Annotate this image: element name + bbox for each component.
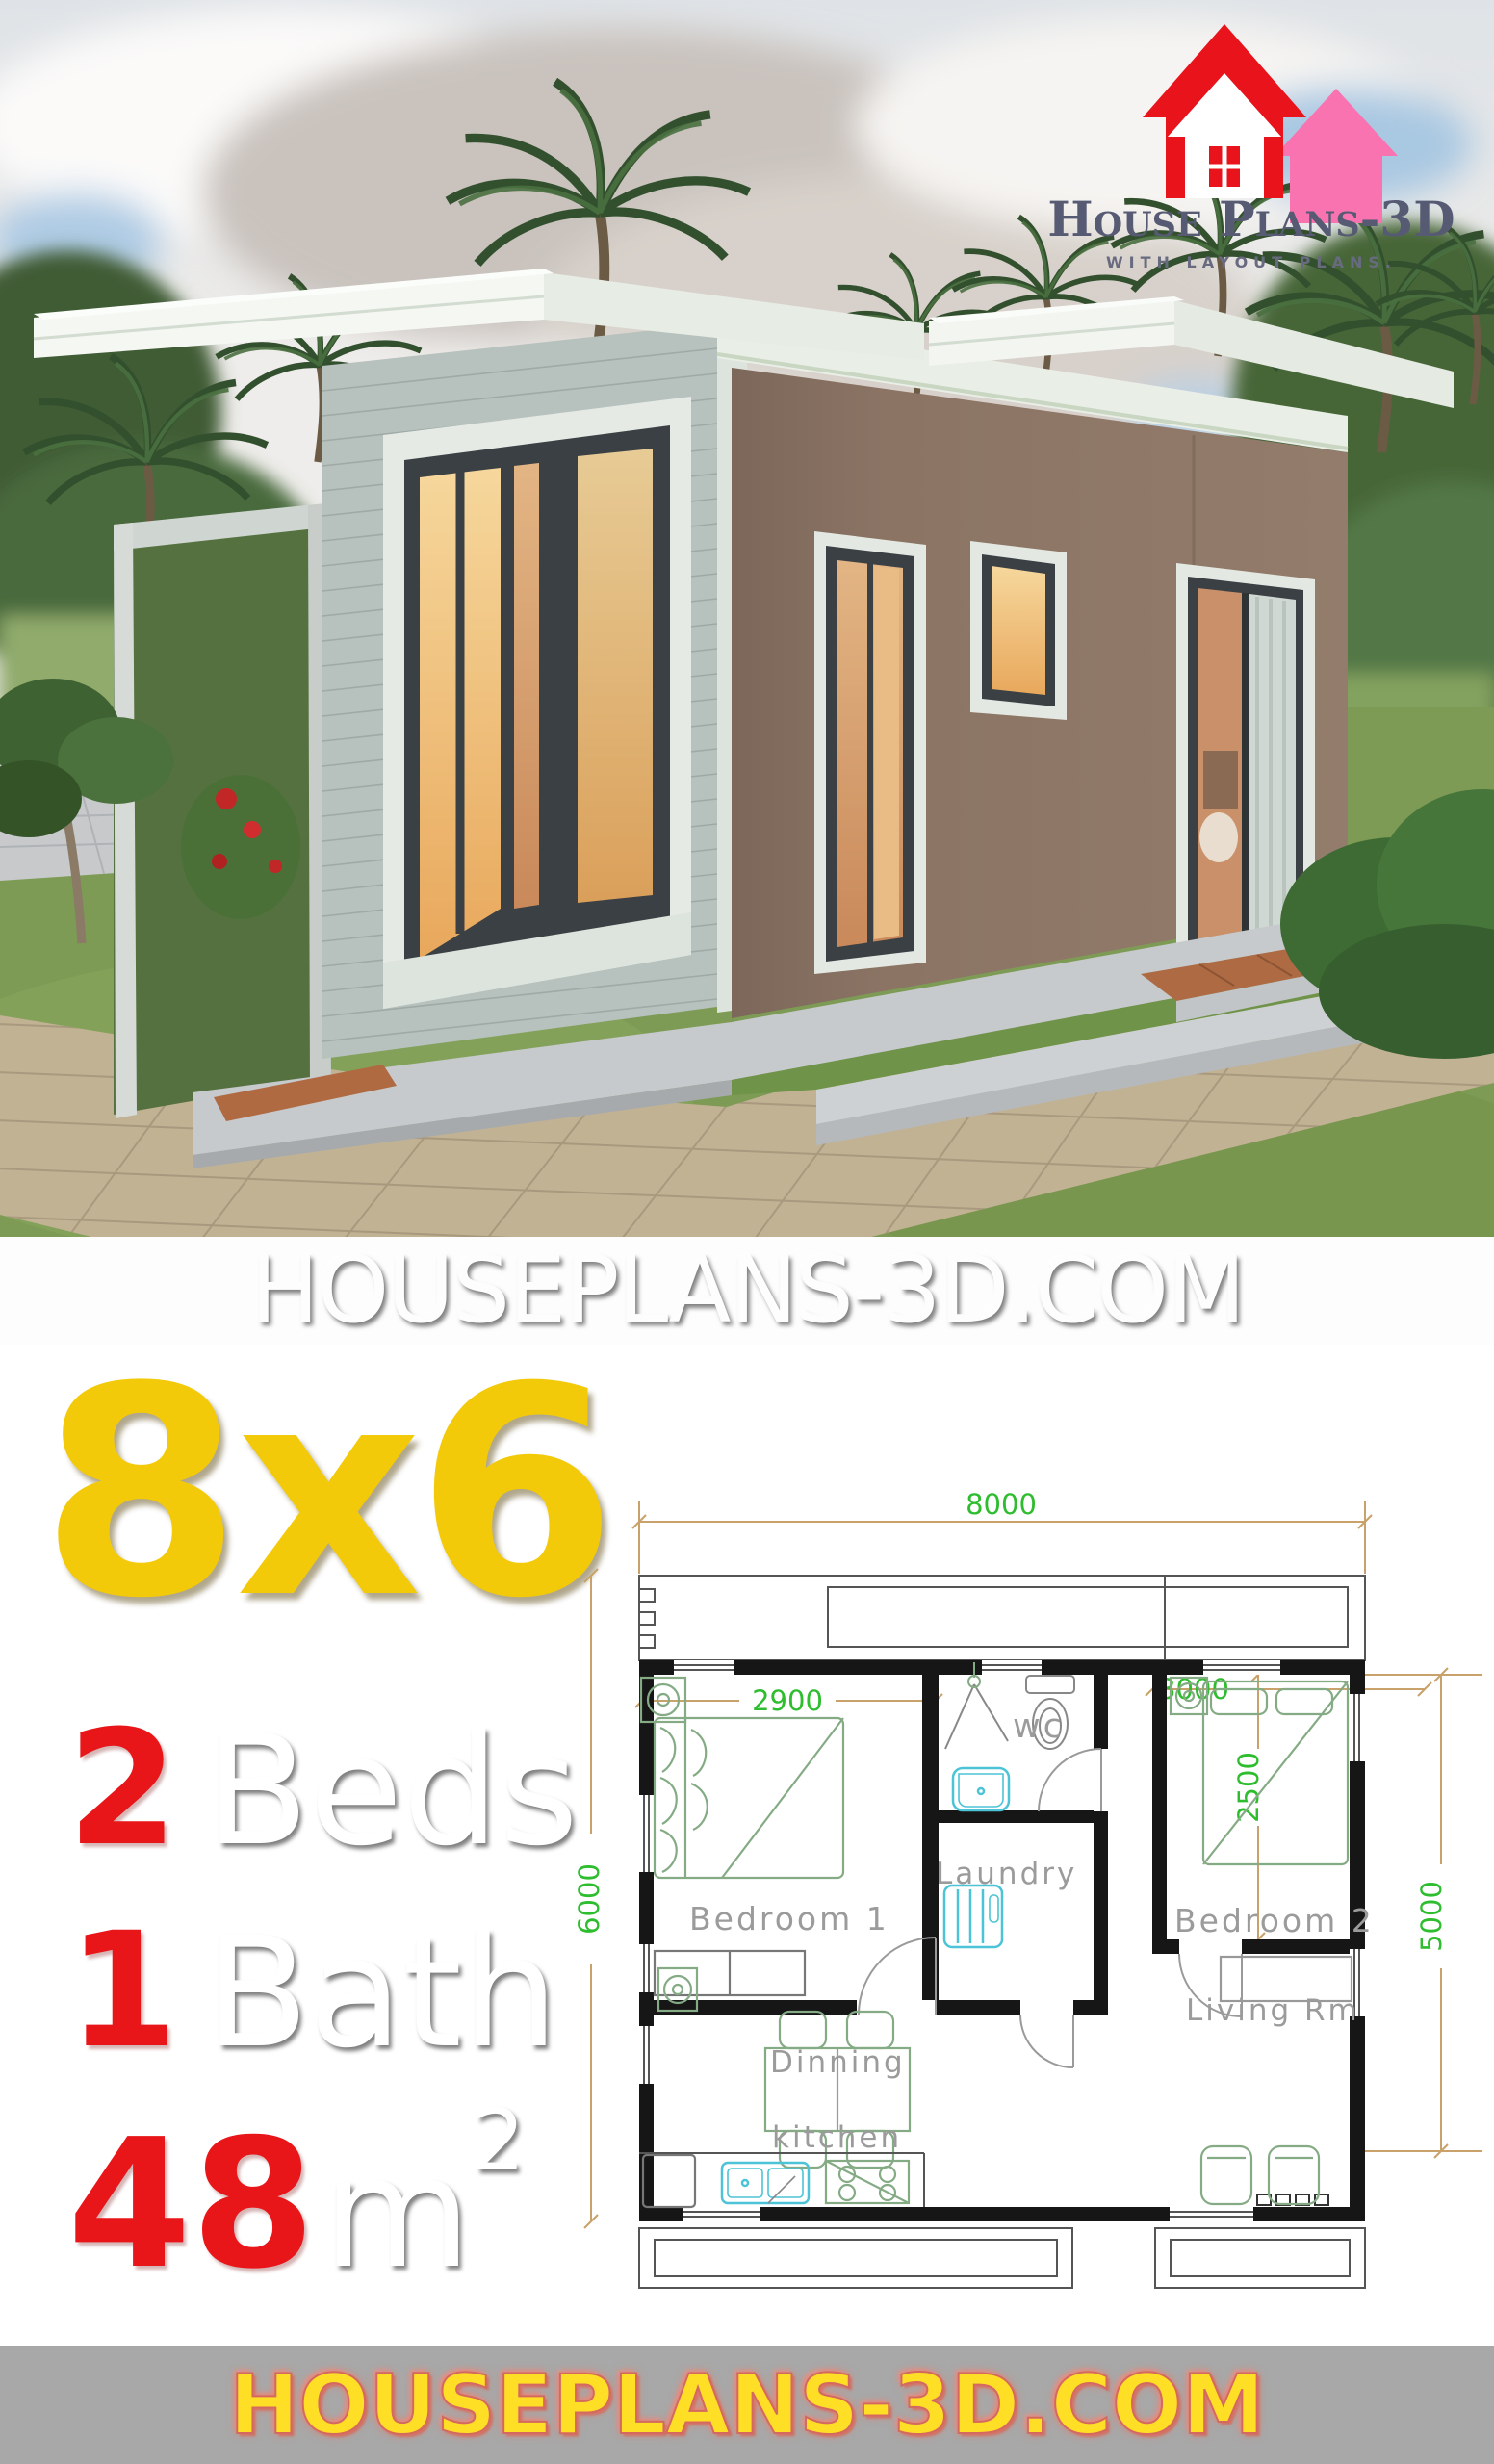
dim-5000: 5000 (1415, 1881, 1448, 1952)
rear-porch (639, 1576, 1365, 1660)
spec-bath: 1Bath (67, 1898, 558, 2083)
room-label-bedroom2: Bedroom 2 (1174, 1902, 1375, 1939)
plot-size: 8x6 (40, 1349, 611, 1638)
kitchen-sink (722, 2163, 809, 2203)
area-unit: m (322, 2125, 471, 2302)
tall-window (814, 531, 926, 974)
room-label-kitchen: kitchen (772, 2120, 902, 2155)
logo-title: House Plans-3D (1047, 191, 1455, 247)
beds-count: 2 (67, 1696, 178, 1881)
spec-beds: 2Beds (67, 1696, 579, 1881)
dim-6000: 6000 (578, 1863, 605, 1935)
front-terrace (639, 2228, 1365, 2288)
footer-bar: HOUSEPLANS-3D.COM (0, 2346, 1494, 2464)
footer-url: HOUSEPLANS-3D.COM (229, 2357, 1264, 2453)
room-label-wc: wc (1013, 1707, 1065, 1746)
area-value: 48 (67, 2100, 315, 2308)
porch-post (114, 523, 137, 1118)
bath-label: Bath (205, 1905, 558, 2082)
square-window (970, 541, 1067, 720)
room-labels: Bedroom 1 wc Laundry Bedroom 2 Living Rm… (689, 1707, 1375, 2155)
dim-2900: 2900 (752, 1684, 823, 1717)
bed-1 (655, 1718, 843, 1878)
render-scene: House Plans-3D WITH LAYOUT PLANS. (0, 0, 1494, 1237)
beds-label: Beds (205, 1703, 579, 1880)
content-section: 8x6 2Beds 1Bath 48m2 (0, 1345, 1494, 2346)
bath-count: 1 (67, 1898, 178, 2083)
washer (944, 1886, 1002, 1947)
bed-2 (1203, 1681, 1348, 1864)
dim-2500: 2500 (1232, 1752, 1265, 1823)
dim-8000: 8000 (966, 1488, 1037, 1521)
room-label-laundry: Laundry (936, 1857, 1077, 1891)
logo-tagline: WITH LAYOUT PLANS. (1106, 253, 1397, 271)
left-face-window (383, 397, 691, 1009)
spec-area: 48m2 (67, 2091, 525, 2308)
area-sup: 2 (471, 2091, 525, 2190)
shower (945, 1662, 1008, 1749)
wc-sink (953, 1768, 1009, 1810)
room-label-dinning: Dinning (770, 2045, 906, 2080)
floor-plan: 8000 6000 5000 2900 3000 2500 (578, 1487, 1494, 2346)
room-label-living: Living Rm (1186, 1993, 1360, 2028)
house-render-photo: House Plans-3D WITH LAYOUT PLANS. (0, 0, 1494, 1237)
room-label-bedroom1: Bedroom 1 (689, 1900, 889, 1938)
